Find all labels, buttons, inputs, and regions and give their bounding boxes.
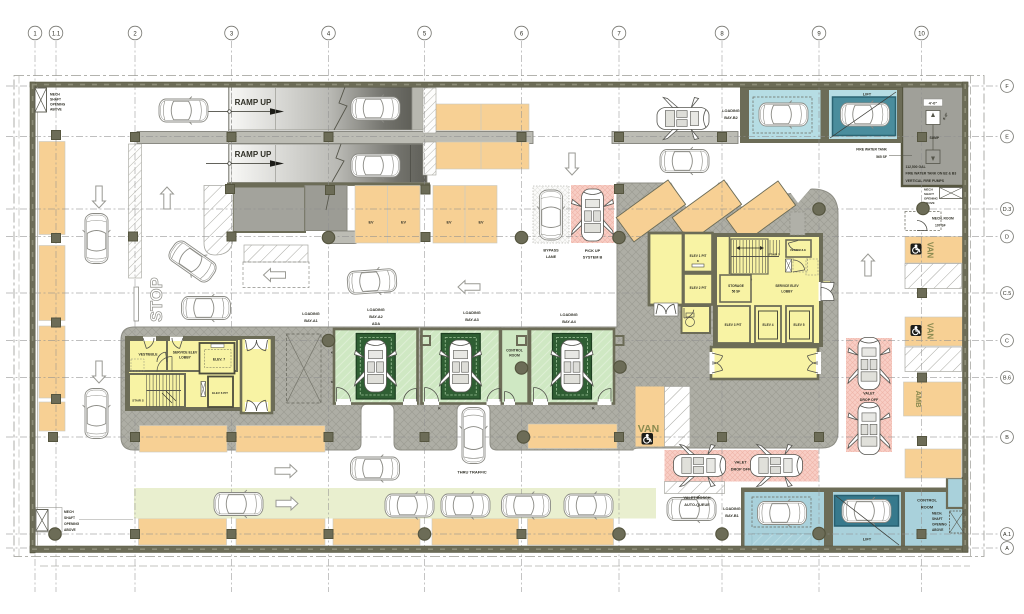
- svg-text:SERVICE ELEV: SERVICE ELEV: [173, 351, 198, 355]
- svg-text:STORAGE: STORAGE: [728, 284, 744, 288]
- svg-text:MECH: MECH: [50, 93, 60, 97]
- svg-text:OPENING: OPENING: [924, 197, 939, 201]
- svg-text:STOP: STOP: [148, 277, 166, 322]
- svg-text:ELEV 1 PIT: ELEV 1 PIT: [690, 254, 707, 258]
- svg-text:ADA: ADA: [372, 322, 380, 326]
- svg-text:C: C: [1005, 339, 1009, 345]
- svg-text:SHAFT: SHAFT: [924, 192, 934, 196]
- svg-text:ABOVE: ABOVE: [50, 108, 63, 112]
- svg-text:ELEV. 7: ELEV. 7: [213, 358, 225, 362]
- svg-text:MECH. ROOM: MECH. ROOM: [932, 217, 954, 221]
- svg-text:ELEV 4: ELEV 4: [763, 323, 774, 327]
- svg-text:EV: EV: [401, 221, 407, 225]
- svg-text:112,500 GAL: 112,500 GAL: [906, 165, 926, 169]
- svg-text:BAY-A3: BAY-A3: [465, 318, 479, 322]
- svg-text:AUTO-QUEUE: AUTO-QUEUE: [684, 503, 710, 507]
- svg-text:VESTIBULE: VESTIBULE: [138, 353, 158, 357]
- svg-text:FIRE WATER TANK ON B2 & B3: FIRE WATER TANK ON B2 & B3: [906, 172, 957, 176]
- svg-text:VERTICAL FIRE PUMPS: VERTICAL FIRE PUMPS: [906, 179, 945, 183]
- svg-text:OPENING: OPENING: [64, 522, 80, 526]
- svg-text:ELEV 6 PIT: ELEV 6 PIT: [212, 391, 228, 395]
- svg-text:FIRE WATER TANK: FIRE WATER TANK: [856, 148, 887, 152]
- svg-text:EV: EV: [478, 221, 484, 225]
- svg-text:SHAFT: SHAFT: [50, 98, 61, 102]
- svg-text:PICK UP: PICK UP: [585, 249, 601, 253]
- svg-text:LIFT: LIFT: [863, 537, 872, 542]
- svg-text:C.5: C.5: [1003, 291, 1011, 297]
- svg-text:THRU TRAFFIC: THRU TRAFFIC: [457, 470, 486, 475]
- svg-text:VALET/BOSCH: VALET/BOSCH: [684, 496, 711, 500]
- svg-text:ROOM: ROOM: [921, 505, 934, 510]
- svg-text:LOADING: LOADING: [723, 507, 741, 511]
- svg-text:B: B: [1005, 435, 1009, 441]
- svg-text:10: 10: [918, 31, 925, 37]
- svg-text:D.3: D.3: [1003, 207, 1011, 213]
- svg-text:BAY-A4: BAY-A4: [562, 320, 576, 324]
- svg-text:LOADING: LOADING: [367, 308, 385, 312]
- svg-text:CONTROL: CONTROL: [917, 498, 937, 503]
- svg-text:VALET: VALET: [863, 392, 875, 396]
- svg-text:LOBBY: LOBBY: [179, 356, 192, 360]
- svg-text:SUMP: SUMP: [930, 136, 940, 140]
- svg-text:BAY-A2: BAY-A2: [369, 315, 383, 319]
- svg-text:VAN: VAN: [926, 242, 935, 259]
- svg-text:SERVICE ELEV: SERVICE ELEV: [775, 284, 799, 288]
- svg-text:56 SF: 56 SF: [732, 290, 741, 294]
- svg-text:D: D: [1005, 235, 1009, 241]
- svg-text:RAMP UP: RAMP UP: [235, 98, 272, 107]
- svg-text:ELEV 3 PIT: ELEV 3 PIT: [725, 323, 742, 327]
- svg-text:LOADING: LOADING: [302, 312, 320, 316]
- svg-text:ELEV 2 PIT: ELEV 2 PIT: [690, 286, 707, 290]
- svg-text:BAY-B1: BAY-B1: [725, 514, 739, 518]
- svg-text:EV: EV: [368, 221, 374, 225]
- svg-text:SHAFT: SHAFT: [64, 516, 75, 520]
- svg-text:1.1: 1.1: [52, 31, 61, 37]
- svg-text:DROP OFF: DROP OFF: [860, 398, 879, 402]
- svg-text:LOADING: LOADING: [722, 109, 740, 113]
- svg-text:OPENING: OPENING: [932, 523, 947, 527]
- svg-text:ROOM: ROOM: [509, 354, 520, 358]
- svg-text:LIFT: LIFT: [863, 92, 872, 97]
- svg-text:ELEV 5: ELEV 5: [794, 323, 805, 327]
- svg-text:MECH.: MECH.: [932, 512, 942, 516]
- svg-text:SHAFT: SHAFT: [932, 517, 943, 521]
- svg-text:B.6: B.6: [1003, 376, 1011, 382]
- svg-text:107 SF: 107 SF: [935, 224, 946, 228]
- svg-text:LOADING: LOADING: [560, 313, 578, 317]
- svg-text:STAIR 1: STAIR 1: [768, 253, 780, 257]
- svg-text:ABOVE: ABOVE: [932, 528, 943, 532]
- svg-text:SYSTEM B: SYSTEM B: [583, 256, 603, 260]
- svg-text:MECH: MECH: [64, 510, 74, 514]
- svg-text:DROP OFF: DROP OFF: [731, 468, 751, 472]
- svg-text:BAY-A1: BAY-A1: [304, 319, 318, 323]
- svg-text:LOBBY: LOBBY: [781, 290, 793, 294]
- svg-text:BAY-B2: BAY-B2: [724, 116, 738, 120]
- svg-text:OPENING: OPENING: [50, 103, 66, 107]
- svg-text:LOADING: LOADING: [463, 311, 481, 315]
- svg-text:RAMP UP: RAMP UP: [235, 150, 272, 159]
- svg-text:A: A: [1005, 546, 1009, 552]
- svg-text:4'-0": 4'-0": [929, 100, 938, 105]
- svg-text:EV: EV: [446, 221, 452, 225]
- svg-text:VALET: VALET: [734, 461, 747, 465]
- svg-text:CONTROL: CONTROL: [506, 349, 523, 353]
- svg-text:MECH: MECH: [924, 188, 933, 192]
- svg-text:BYPASS: BYPASS: [543, 249, 559, 253]
- svg-text:VAN: VAN: [926, 323, 935, 340]
- svg-text:STAIR S: STAIR S: [132, 399, 144, 403]
- svg-text:LANE: LANE: [546, 255, 557, 259]
- svg-text:565 SF: 565 SF: [876, 155, 887, 159]
- svg-text:ABOVE: ABOVE: [64, 528, 77, 532]
- svg-text:A.1: A.1: [1003, 532, 1011, 538]
- svg-text:AMB: AMB: [914, 390, 923, 408]
- svg-text:E: E: [1005, 135, 1009, 141]
